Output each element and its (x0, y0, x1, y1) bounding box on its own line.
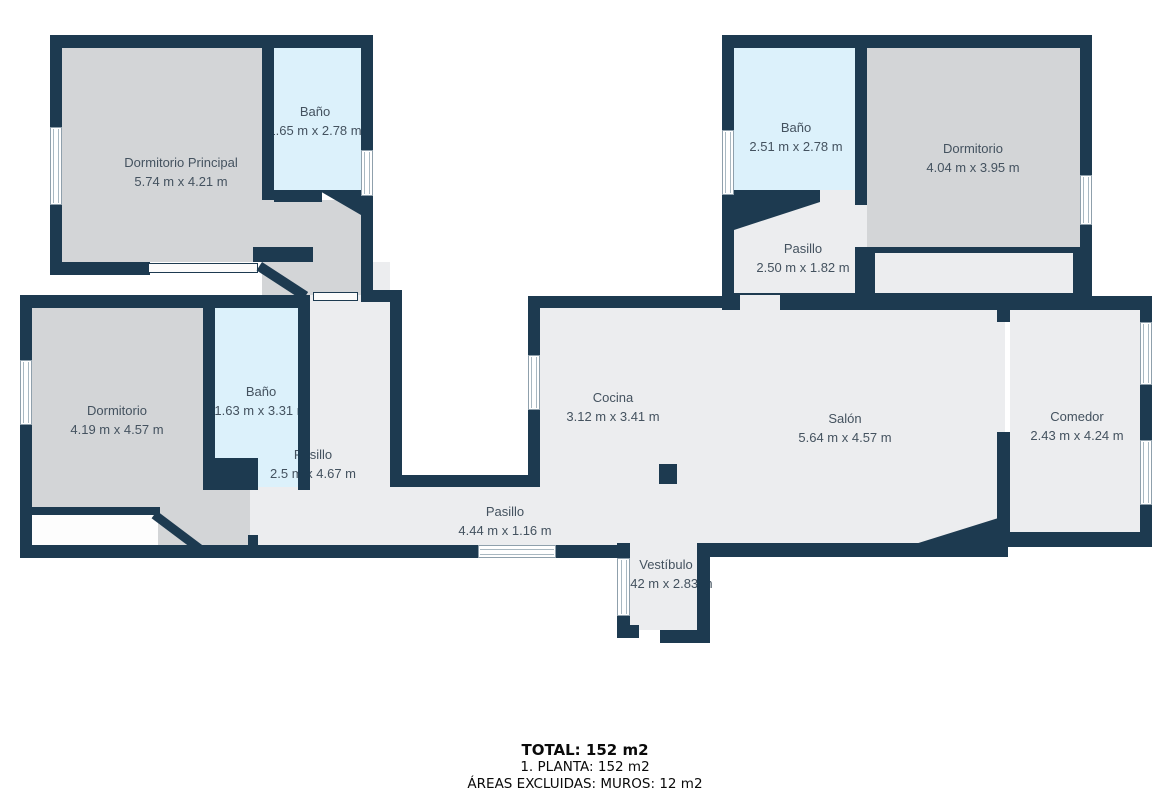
room-label-bano-left: Baño 1.63 m x 3.31 m (214, 382, 307, 420)
room-name: Pasillo (756, 239, 849, 258)
room-dims: 4.04 m x 3.95 m (926, 158, 1019, 177)
summary-total: TOTAL: 152 m2 (0, 741, 1170, 759)
room-dims: 5.64 m x 4.57 m (798, 428, 891, 447)
wall (361, 48, 373, 150)
wall-stub (1073, 253, 1080, 293)
window (1140, 322, 1152, 385)
room-name: Baño (749, 118, 842, 137)
window (20, 360, 32, 425)
pillar (659, 464, 677, 484)
closet-top-right (875, 253, 1073, 293)
window (361, 150, 373, 196)
room-dims: 2.5 m x 4.67 m (270, 464, 356, 483)
wall (1140, 296, 1152, 322)
shower-block (215, 458, 258, 490)
wall (1140, 385, 1152, 440)
wall (390, 475, 540, 487)
room-label-pasillo-horizontal: Pasillo 4.44 m x 1.16 m (458, 502, 551, 540)
window (617, 558, 630, 616)
wall (1005, 532, 1152, 547)
wall (734, 190, 820, 202)
door-threshold (313, 292, 358, 301)
door-gap-pasillo-dorm (855, 205, 867, 247)
window (722, 130, 734, 195)
wall (50, 35, 373, 48)
wall (262, 48, 274, 200)
room-dims: 1.63 m x 3.31 m (214, 401, 307, 420)
wall (528, 296, 740, 308)
summary-planta: 1. PLANTA: 152 m2 (0, 759, 1170, 776)
room-name: Cocina (566, 388, 659, 407)
closet-wall (30, 507, 160, 515)
room-dims: 2.43 m x 4.24 m (1030, 426, 1123, 445)
wall (203, 308, 215, 490)
room-name: Comedor (1030, 407, 1123, 426)
wall (298, 308, 310, 490)
wall (1140, 505, 1152, 535)
wall (722, 195, 734, 308)
window-pane (23, 362, 29, 423)
room-label-dormitorio-principal: Dormitorio Principal 5.74 m x 4.21 m (124, 153, 237, 191)
closet-wall (867, 247, 1080, 253)
room-label-salon: Salón 5.64 m x 4.57 m (798, 409, 891, 447)
wall (50, 262, 150, 275)
room-name: Pasillo (458, 502, 551, 521)
room-dims: 3.12 m x 3.41 m (566, 407, 659, 426)
door-gap-main (740, 295, 780, 310)
window-pane (621, 560, 627, 614)
wall-stub (867, 253, 875, 293)
room-dims: 2.51 m x 2.78 m (749, 137, 842, 156)
room-label-dormitorio-top-right: Dormitorio 4.04 m x 3.95 m (926, 139, 1019, 177)
sliding-door (148, 263, 258, 273)
closet-left (32, 515, 158, 545)
dormitorio-left-floor-ext (203, 490, 250, 545)
wall (617, 625, 639, 638)
floor-plan-page: { "plan": { "type": "floor-plan", "floor… (0, 0, 1170, 785)
wall (20, 545, 310, 558)
window (528, 355, 540, 410)
wall (528, 410, 540, 475)
wall (253, 247, 313, 262)
wall (722, 48, 734, 130)
wall (1080, 48, 1092, 175)
room-label-pasillo-top-right: Pasillo 2.50 m x 1.82 m (756, 239, 849, 277)
wall (20, 308, 32, 360)
window-pane (53, 129, 59, 203)
room-dims: 1.65 m x 2.78 m (268, 121, 361, 140)
room-dims: 5.74 m x 4.21 m (124, 172, 237, 191)
wall (660, 630, 710, 643)
wall (722, 35, 1092, 48)
room-label-cocina: Cocina 3.12 m x 3.41 m (566, 388, 659, 426)
area-summary: TOTAL: 152 m2 1. PLANTA: 152 m2 ÁREAS EX… (0, 741, 1170, 793)
wall (1080, 225, 1092, 310)
room-label-pasillo-vertical: Pasillo 2.5 m x 4.67 m (270, 445, 356, 483)
window-pane (531, 357, 537, 408)
wall-stub (248, 535, 258, 547)
window (50, 127, 62, 205)
wall (710, 543, 925, 557)
wall (390, 290, 402, 487)
room-name: Baño (268, 102, 361, 121)
wall (855, 247, 867, 310)
wall (528, 308, 540, 355)
wall (274, 190, 322, 202)
wall (20, 295, 310, 308)
room-name: Pasillo (270, 445, 356, 464)
door-gap-bano (820, 190, 855, 202)
window-pane (725, 132, 731, 193)
wall (855, 35, 867, 205)
wall (305, 545, 630, 558)
room-label-bano-principal: Baño 1.65 m x 2.78 m (268, 102, 361, 140)
room-label-dormitorio-left: Dormitorio 4.19 m x 4.57 m (70, 401, 163, 439)
salon-cocina-floor (540, 308, 1005, 545)
room-label-bano-top-right: Baño 2.51 m x 2.78 m (749, 118, 842, 156)
wall (20, 425, 32, 557)
room-name: Salón (798, 409, 891, 428)
window (1140, 440, 1152, 505)
room-name: Dormitorio (926, 139, 1019, 158)
wall (617, 543, 630, 558)
window-pane (1143, 324, 1149, 383)
wall (50, 48, 62, 127)
room-name: Dormitorio (70, 401, 163, 420)
room-label-comedor: Comedor 2.43 m x 4.24 m (1030, 407, 1123, 445)
room-name: Dormitorio Principal (124, 153, 237, 172)
wall (997, 432, 1010, 545)
room-dims: 2.50 m x 1.82 m (756, 258, 849, 277)
window-pane (480, 549, 554, 555)
window-pane (364, 152, 370, 194)
window-pane (1143, 442, 1149, 503)
window (1080, 175, 1092, 225)
window (478, 545, 556, 558)
wall (697, 543, 710, 643)
room-dims: 4.44 m x 1.16 m (458, 521, 551, 540)
room-name: Baño (214, 382, 307, 401)
wall (361, 196, 373, 295)
room-dims: 4.19 m x 4.57 m (70, 420, 163, 439)
window-pane (1083, 177, 1089, 223)
